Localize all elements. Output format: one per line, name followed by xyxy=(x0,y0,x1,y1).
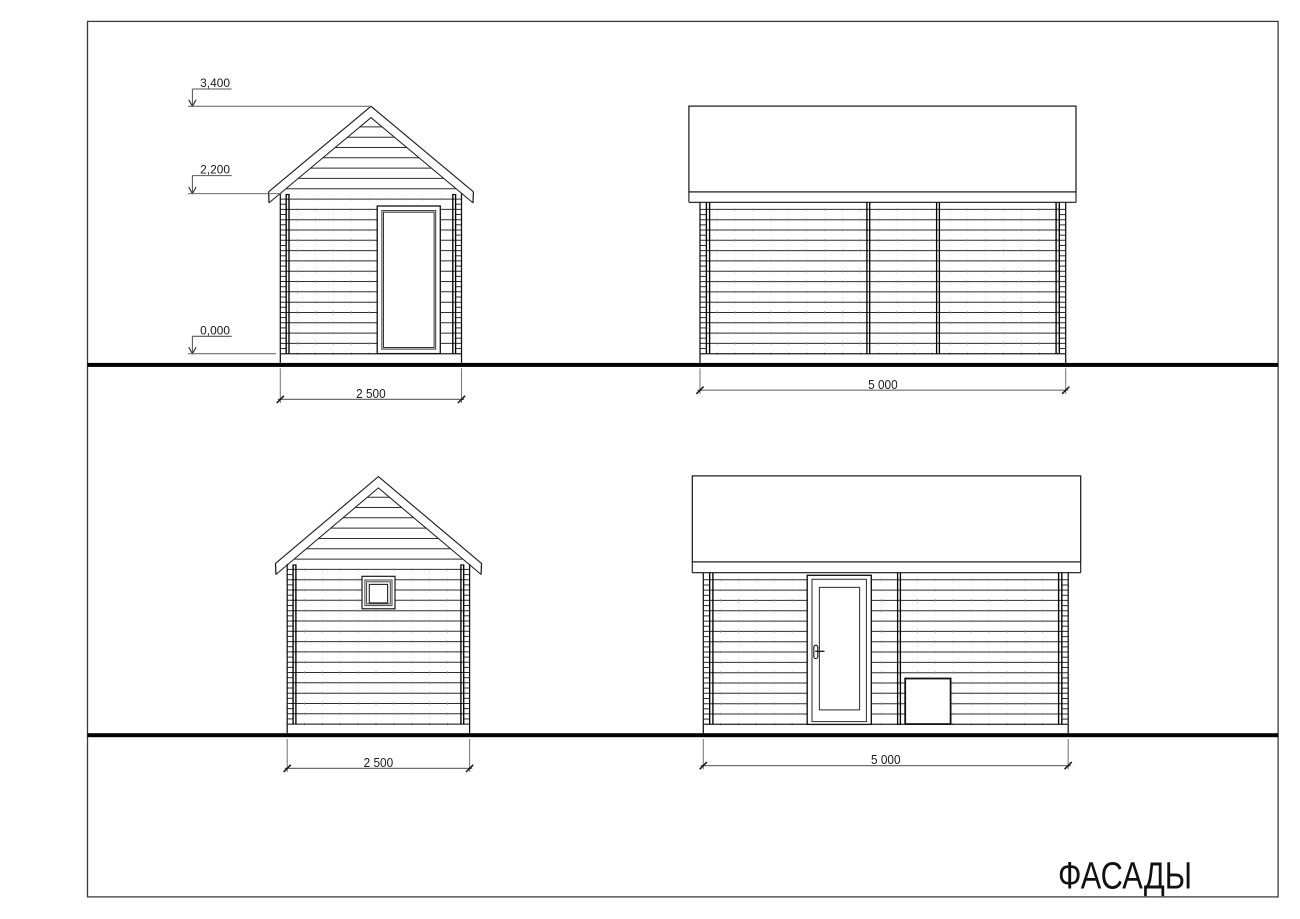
svg-text:2 500: 2 500 xyxy=(364,755,394,770)
svg-text:2,200: 2,200 xyxy=(200,163,230,177)
svg-text:2 500: 2 500 xyxy=(356,386,386,401)
svg-text:ФАСАДЫ: ФАСАДЫ xyxy=(1058,856,1192,898)
svg-text:5 000: 5 000 xyxy=(868,377,898,392)
svg-text:3,400: 3,400 xyxy=(200,76,230,90)
svg-text:5 000: 5 000 xyxy=(871,752,901,767)
svg-text:0,000: 0,000 xyxy=(200,323,230,337)
